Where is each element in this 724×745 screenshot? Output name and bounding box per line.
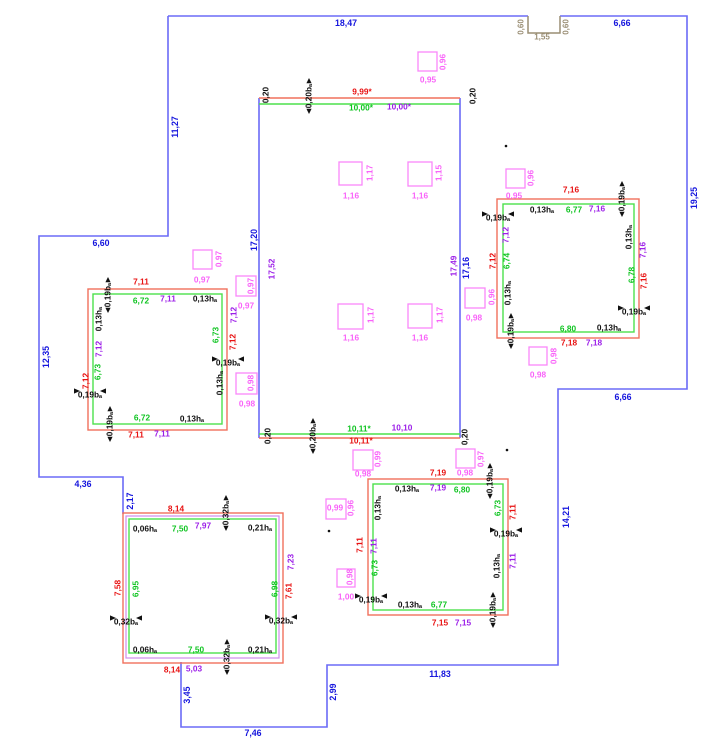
dimension-label: 1,00 xyxy=(338,592,355,602)
dimension-label: 8,14 xyxy=(164,665,181,675)
dimension-label: 0,13hₐ xyxy=(373,495,383,520)
dimension-label: 7,19 xyxy=(430,483,447,493)
dimension-label: 0,19bₐ xyxy=(359,595,384,605)
dimension-label: 6,74 xyxy=(502,253,512,270)
dimension-label: 3,45 xyxy=(182,686,192,703)
dimension-label: 0,13hₐ xyxy=(530,205,555,215)
dimension-label: 7,97 xyxy=(195,521,212,531)
dimension-label: 7,15 xyxy=(455,618,472,628)
dimension-label: 11,83 xyxy=(429,669,451,679)
dimension-label: 0,96 xyxy=(346,500,356,517)
dimension-label: 0,20 xyxy=(263,428,273,445)
dimension-label: 7,58 xyxy=(113,580,123,597)
dimension-label: 0,95 xyxy=(506,191,523,201)
dimension-label: 7,19 xyxy=(430,468,447,478)
dimension-label: 0,19bₐ xyxy=(105,411,115,436)
dimension-label: 17,20 xyxy=(249,229,259,251)
dimension-label: 7,12 xyxy=(501,227,511,244)
dimension-label: 7,12 xyxy=(94,341,104,358)
dimension-label: 7,50 xyxy=(188,645,205,655)
dimension-label: 10,00* xyxy=(349,103,374,113)
dimension-label: 18,47 xyxy=(335,18,357,28)
dimension-label: 7,11 xyxy=(133,277,149,287)
dimension-label: 17,16 xyxy=(461,257,471,279)
dimension-label: 0,13hₐ xyxy=(94,306,104,331)
dimension-label: 7,11 xyxy=(369,538,379,554)
dimension-label: 0,96 xyxy=(438,54,448,71)
dimension-label: 6,98 xyxy=(270,581,280,598)
dimension-label: 7,11 xyxy=(355,537,365,553)
dimension-label: 10,11* xyxy=(347,424,371,434)
dimension-label: 7,11 xyxy=(160,294,176,304)
dimension-label: 7,50 xyxy=(172,524,189,534)
dimension-label: 19,25 xyxy=(689,187,699,209)
dimension-label: 0,13hₐ xyxy=(395,484,420,494)
dimension-label: 0,98 xyxy=(549,348,559,365)
dimension-label: 6,73 xyxy=(93,364,103,381)
dimension-label: 0,95 xyxy=(420,75,437,85)
dimension-label: 0,19bₐ xyxy=(103,282,113,307)
dimension-label: 7,11 xyxy=(508,553,518,569)
dimension-label: 0,20 xyxy=(468,88,478,105)
dimension-label: 0,13hₐ xyxy=(398,600,423,610)
dimension-label: 1,16 xyxy=(343,191,360,201)
dimension-label: 7,16 xyxy=(563,185,580,195)
dimension-label: 0,98 xyxy=(466,313,483,323)
dimension-label: 6,80 xyxy=(560,324,577,334)
dimension-label: 0,21hₐ xyxy=(248,523,273,533)
dimension-label: 0,13hₐ xyxy=(624,224,634,249)
dimension-label: 7,18 xyxy=(586,338,603,348)
dimension-label: 1,16 xyxy=(343,333,360,343)
dimension-label: 0,99 xyxy=(327,503,344,513)
dimension-label: 0,96 xyxy=(487,289,497,306)
dimension-label: 6,80 xyxy=(454,485,471,495)
dimension-label: 1,17 xyxy=(435,307,445,324)
dimension-label: 0,06hₐ xyxy=(133,524,158,534)
dimension-label: 7,12 xyxy=(81,373,91,390)
dimension-label: 4,36 xyxy=(74,479,91,489)
floor-plan-drawing: 18,476,6619,256,6614,2111,832,997,463,45… xyxy=(0,0,724,745)
dimension-label: 0,97 xyxy=(194,275,211,285)
dimension-label: 1,17 xyxy=(365,165,375,182)
dimension-label: 6,77 xyxy=(431,600,448,610)
dimension-label: 1,15 xyxy=(434,165,444,182)
dimension-label: 0,97 xyxy=(238,301,255,311)
dimension-label: 7,46 xyxy=(244,728,261,738)
dimension-label: 7,15 xyxy=(432,618,449,628)
dimension-label: 0,20 xyxy=(460,429,470,446)
dimension-label: 0,19bₐ xyxy=(78,390,103,400)
dimension-label: 6,72 xyxy=(133,296,150,306)
dimension-label: 0,19bₐ xyxy=(488,597,498,622)
dimension-label: 0,19bₐ xyxy=(485,468,495,493)
dimension-label: 1,16 xyxy=(412,191,429,201)
dimension-label: 0,19bₐ xyxy=(622,307,647,317)
dimension-label: 2,17 xyxy=(125,492,135,509)
dimension-label: 0,19bₐ xyxy=(506,318,516,343)
dimension-label: 5,03 xyxy=(186,664,203,674)
reference-dot xyxy=(328,530,331,533)
dimension-label: 0,32bₐ xyxy=(114,617,139,627)
dimension-label: 0,98 xyxy=(239,399,256,409)
dimension-label: 0,98 xyxy=(345,569,355,586)
dimension-label: 6,78 xyxy=(627,267,637,284)
dimension-label: 0,19bₐ xyxy=(486,213,511,223)
dimension-label: 6,72 xyxy=(134,413,151,423)
dimension-label: 1,16 xyxy=(412,333,429,343)
dimension-label: 7,16 xyxy=(589,204,606,214)
dimension-label: 6,95 xyxy=(131,581,141,598)
dimension-label: 0,99 xyxy=(373,451,383,468)
dimension-label: 0,32bₐ xyxy=(269,616,294,626)
dimension-label: 9,99* xyxy=(352,87,372,97)
dimension-label: 0,19bₐ xyxy=(494,529,519,539)
dimension-label: 17,52 xyxy=(267,258,277,279)
dimension-label: 0,98 xyxy=(457,468,474,478)
dimension-label: 7,16 xyxy=(639,273,649,290)
dimension-label: 0,20bₐ xyxy=(304,83,314,108)
dimension-label: 0,19bₐ xyxy=(216,358,241,368)
dimension-label: 0,13hₐ xyxy=(215,370,225,395)
dimension-label: 6,73 xyxy=(370,560,380,577)
dimension-label: 7,16 xyxy=(638,242,648,259)
dimension-label: 0,20bₐ xyxy=(308,423,318,448)
dimension-label: 7,11 xyxy=(154,429,170,439)
dimension-label: 7,12 xyxy=(228,334,238,351)
dimension-label: 7,12 xyxy=(488,253,498,270)
floor-plan-canvas: 18,476,6619,256,6614,2111,832,997,463,45… xyxy=(0,0,724,745)
dimension-label: 0,32bₐ xyxy=(222,644,232,669)
dimension-label: 0,13hₐ xyxy=(180,414,205,424)
dimension-label: 0,97 xyxy=(476,451,486,468)
dimension-label: 11,27 xyxy=(170,116,180,138)
dimension-label: 0,13hₐ xyxy=(503,280,513,305)
dimension-label: 0,98 xyxy=(530,370,547,380)
dimension-label: 7,23 xyxy=(286,554,296,571)
dimension-label: 0,98 xyxy=(246,375,256,392)
dimension-label: 0,21hₐ xyxy=(248,645,273,655)
dimension-label: 0,20 xyxy=(261,87,271,104)
dimension-label: 10,00* xyxy=(387,102,412,112)
dimension-label: 10,10 xyxy=(392,423,413,433)
dimension-label: 1,55 xyxy=(534,33,550,42)
dimension-label: 0,13hₐ xyxy=(492,553,502,578)
dimension-label: 1,17 xyxy=(366,307,376,324)
dimension-label: 0,98 xyxy=(355,469,372,479)
dimension-label: 6,60 xyxy=(92,238,109,248)
dimension-label: 0,60 xyxy=(562,19,571,35)
dimension-label: 7,61 xyxy=(284,583,294,600)
dimension-label: 7,11 xyxy=(508,504,518,520)
dimension-label: 6,73 xyxy=(211,327,221,344)
dimension-label: 12,35 xyxy=(41,346,51,368)
dimension-label: 6,77 xyxy=(566,205,583,215)
dimension-label: 7,18 xyxy=(561,338,578,348)
reference-dot xyxy=(505,145,508,148)
dimension-label: 0,96 xyxy=(526,170,536,187)
dimension-label: 6,66 xyxy=(614,392,631,402)
dimension-label: 2,99 xyxy=(328,683,338,700)
dimension-label: 0,97 xyxy=(246,278,256,295)
dimension-label: 14,21 xyxy=(561,506,571,528)
dimension-label: 0,60 xyxy=(517,19,526,35)
dimension-label: 17,49 xyxy=(449,255,459,276)
dimension-label: 0,97 xyxy=(214,251,224,268)
dimension-label: 8,14 xyxy=(168,504,185,514)
dimension-label: 0,19bₐ xyxy=(617,186,627,211)
dimension-label: 0,13hₐ xyxy=(597,323,622,333)
dimension-label: 7,11 xyxy=(128,430,144,440)
dimension-label: 6,73 xyxy=(493,500,503,517)
dimension-label: 6,66 xyxy=(613,18,630,28)
dimension-label: 10,11* xyxy=(349,436,373,446)
reference-dot xyxy=(506,449,509,452)
dimension-label: 0,06hₐ xyxy=(133,645,158,655)
dimension-label: 0,32bₐ xyxy=(221,500,231,525)
dimension-label: 0,13hₐ xyxy=(193,294,218,304)
